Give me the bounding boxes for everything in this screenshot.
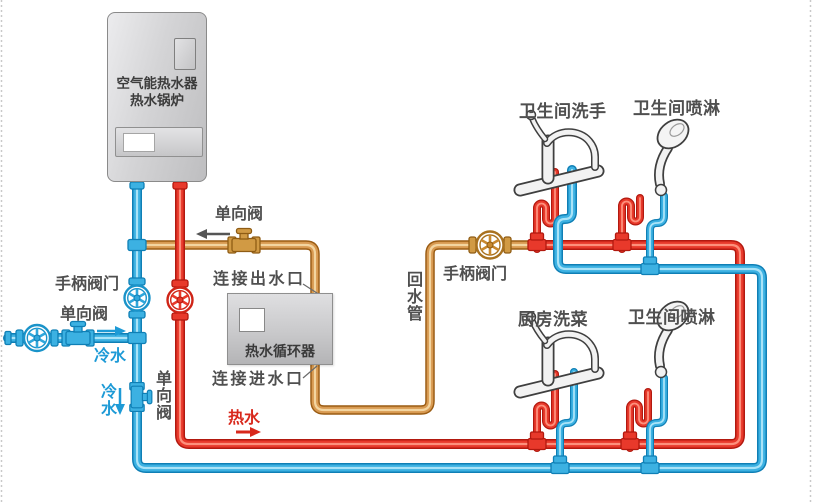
- heater-name: 空气能热水器 热水锅炉: [108, 75, 206, 109]
- handwheel-valve-icon-inlet: [16, 325, 58, 351]
- label-handle-valve-mid: 手柄阀门: [443, 266, 507, 284]
- shower-icon-top: [652, 114, 694, 196]
- check-valve-icon-inlet: [62, 322, 94, 347]
- heater-control-panel: [115, 127, 203, 157]
- handwheel-valve-icon-hot: [168, 280, 193, 320]
- label-check-valve-drop: 单向阀: [155, 371, 173, 422]
- label-check-valve-top: 单向阀: [215, 206, 263, 224]
- heater-unit: 空气能热水器 热水锅炉: [107, 12, 207, 182]
- flow-arrow-hot-right: [236, 427, 261, 437]
- label-return-pipe: 回水管: [406, 272, 424, 323]
- label-bath-sink: 卫生间洗手: [519, 103, 607, 122]
- faucet-icon-bath-sink: [520, 111, 598, 191]
- plumbing-diagram: 空气能热水器 热水锅炉 热水循环器 单向阀 连接出水口 连接进水口 回水管 手柄…: [0, 0, 821, 504]
- heater-name-line1: 空气能热水器: [108, 75, 206, 92]
- label-connect-inlet: 连接进水口: [212, 371, 305, 389]
- label-check-valve-inlet: 单向阀: [60, 306, 108, 324]
- handwheel-valve-icon-cold: [125, 278, 150, 318]
- label-cold-water: 冷水: [94, 348, 126, 366]
- heater-porthole: [174, 38, 196, 70]
- heater-display: [123, 133, 155, 152]
- label-bath-shower-top: 卫生间喷淋: [633, 100, 721, 119]
- circulator-window: [239, 308, 265, 332]
- heater-name-line2: 热水锅炉: [108, 92, 206, 109]
- label-handle-valve-left: 手柄阀门: [55, 276, 119, 294]
- handwheel-valve-icon-return: [469, 232, 511, 259]
- label-hot-water: 热水: [228, 410, 260, 428]
- check-valve-icon-return: [228, 229, 260, 254]
- circulator-unit: 热水循环器: [227, 293, 333, 365]
- label-cold-water-drop: 冷水: [100, 384, 118, 418]
- flow-arrow-return-left: [196, 229, 230, 239]
- circulator-name: 热水循环器: [228, 341, 332, 361]
- label-bath-shower-bottom: 卫生间喷淋: [628, 309, 716, 328]
- label-connect-outlet: 连接出水口: [213, 271, 306, 289]
- label-kitchen-sink: 厨房洗菜: [518, 311, 588, 330]
- check-valve-icon-drop: [130, 383, 152, 412]
